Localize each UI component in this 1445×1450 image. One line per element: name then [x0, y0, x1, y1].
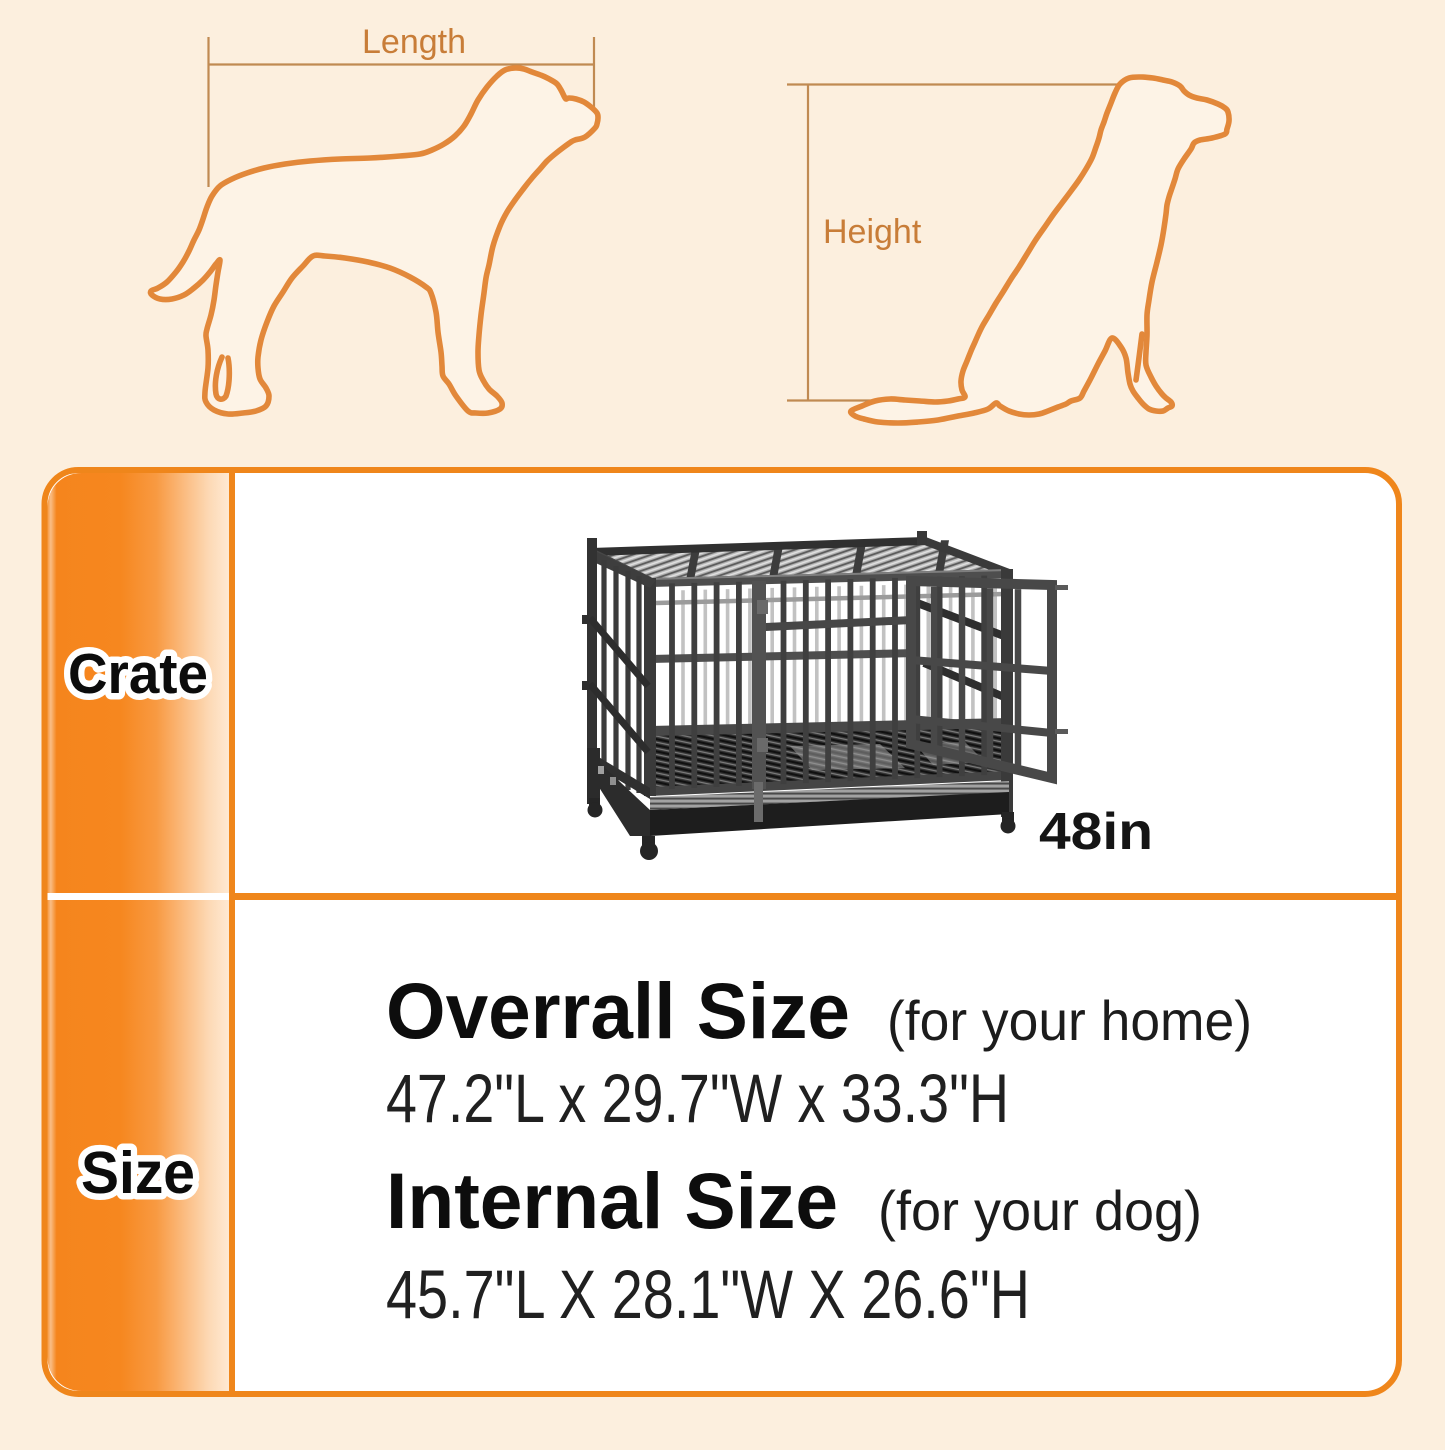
svg-text:(for your dog): (for your dog) [878, 1179, 1202, 1242]
svg-text:45.7"L X 28.1"W X 26.6"H: 45.7"L X 28.1"W X 26.6"H [386, 1256, 1030, 1333]
svg-text:(for your home): (for your home) [887, 989, 1252, 1052]
svg-text:48in: 48in [1039, 803, 1153, 861]
svg-text:Length: Length [362, 23, 466, 61]
svg-text:Overrall Size: Overrall Size [386, 966, 850, 1055]
svg-text:Internal Size: Internal Size [386, 1156, 838, 1245]
svg-text:Crate: Crate [68, 642, 208, 706]
svg-text:47.2"L x 29.7"W x 33.3"H: 47.2"L x 29.7"W x 33.3"H [386, 1060, 1009, 1137]
svg-text:Size: Size [81, 1140, 195, 1206]
svg-text:Height: Height [823, 213, 922, 251]
